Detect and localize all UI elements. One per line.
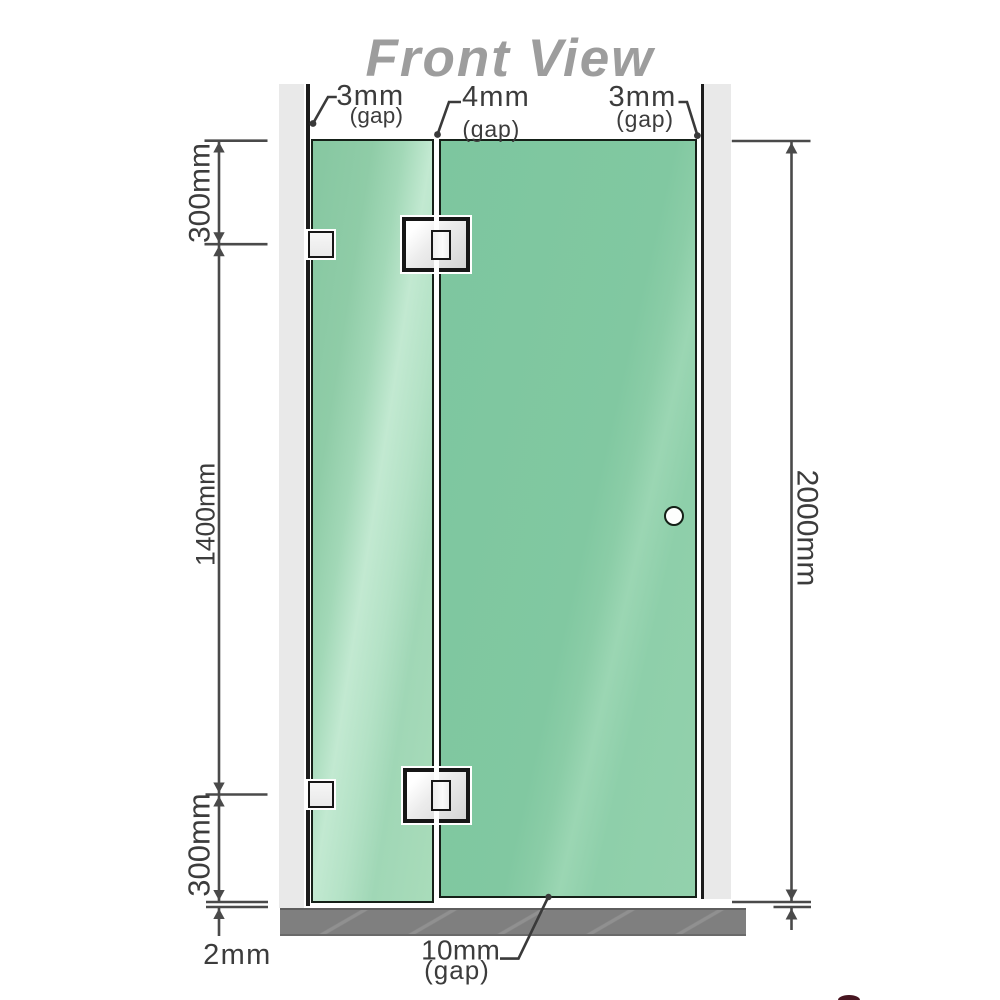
svg-text:(gap): (gap) bbox=[616, 106, 674, 132]
svg-text:1400mm: 1400mm bbox=[191, 463, 221, 566]
svg-text:2mm: 2mm bbox=[203, 939, 272, 971]
svg-text:300mm: 300mm bbox=[184, 143, 217, 243]
svg-text:4mm: 4mm bbox=[462, 81, 530, 113]
svg-text:(gap): (gap) bbox=[462, 116, 520, 142]
svg-text:(gap): (gap) bbox=[350, 103, 404, 128]
svg-text:(gap): (gap) bbox=[424, 955, 490, 985]
svg-text:300mm: 300mm bbox=[182, 793, 217, 896]
svg-text:2000mm: 2000mm bbox=[791, 470, 824, 587]
